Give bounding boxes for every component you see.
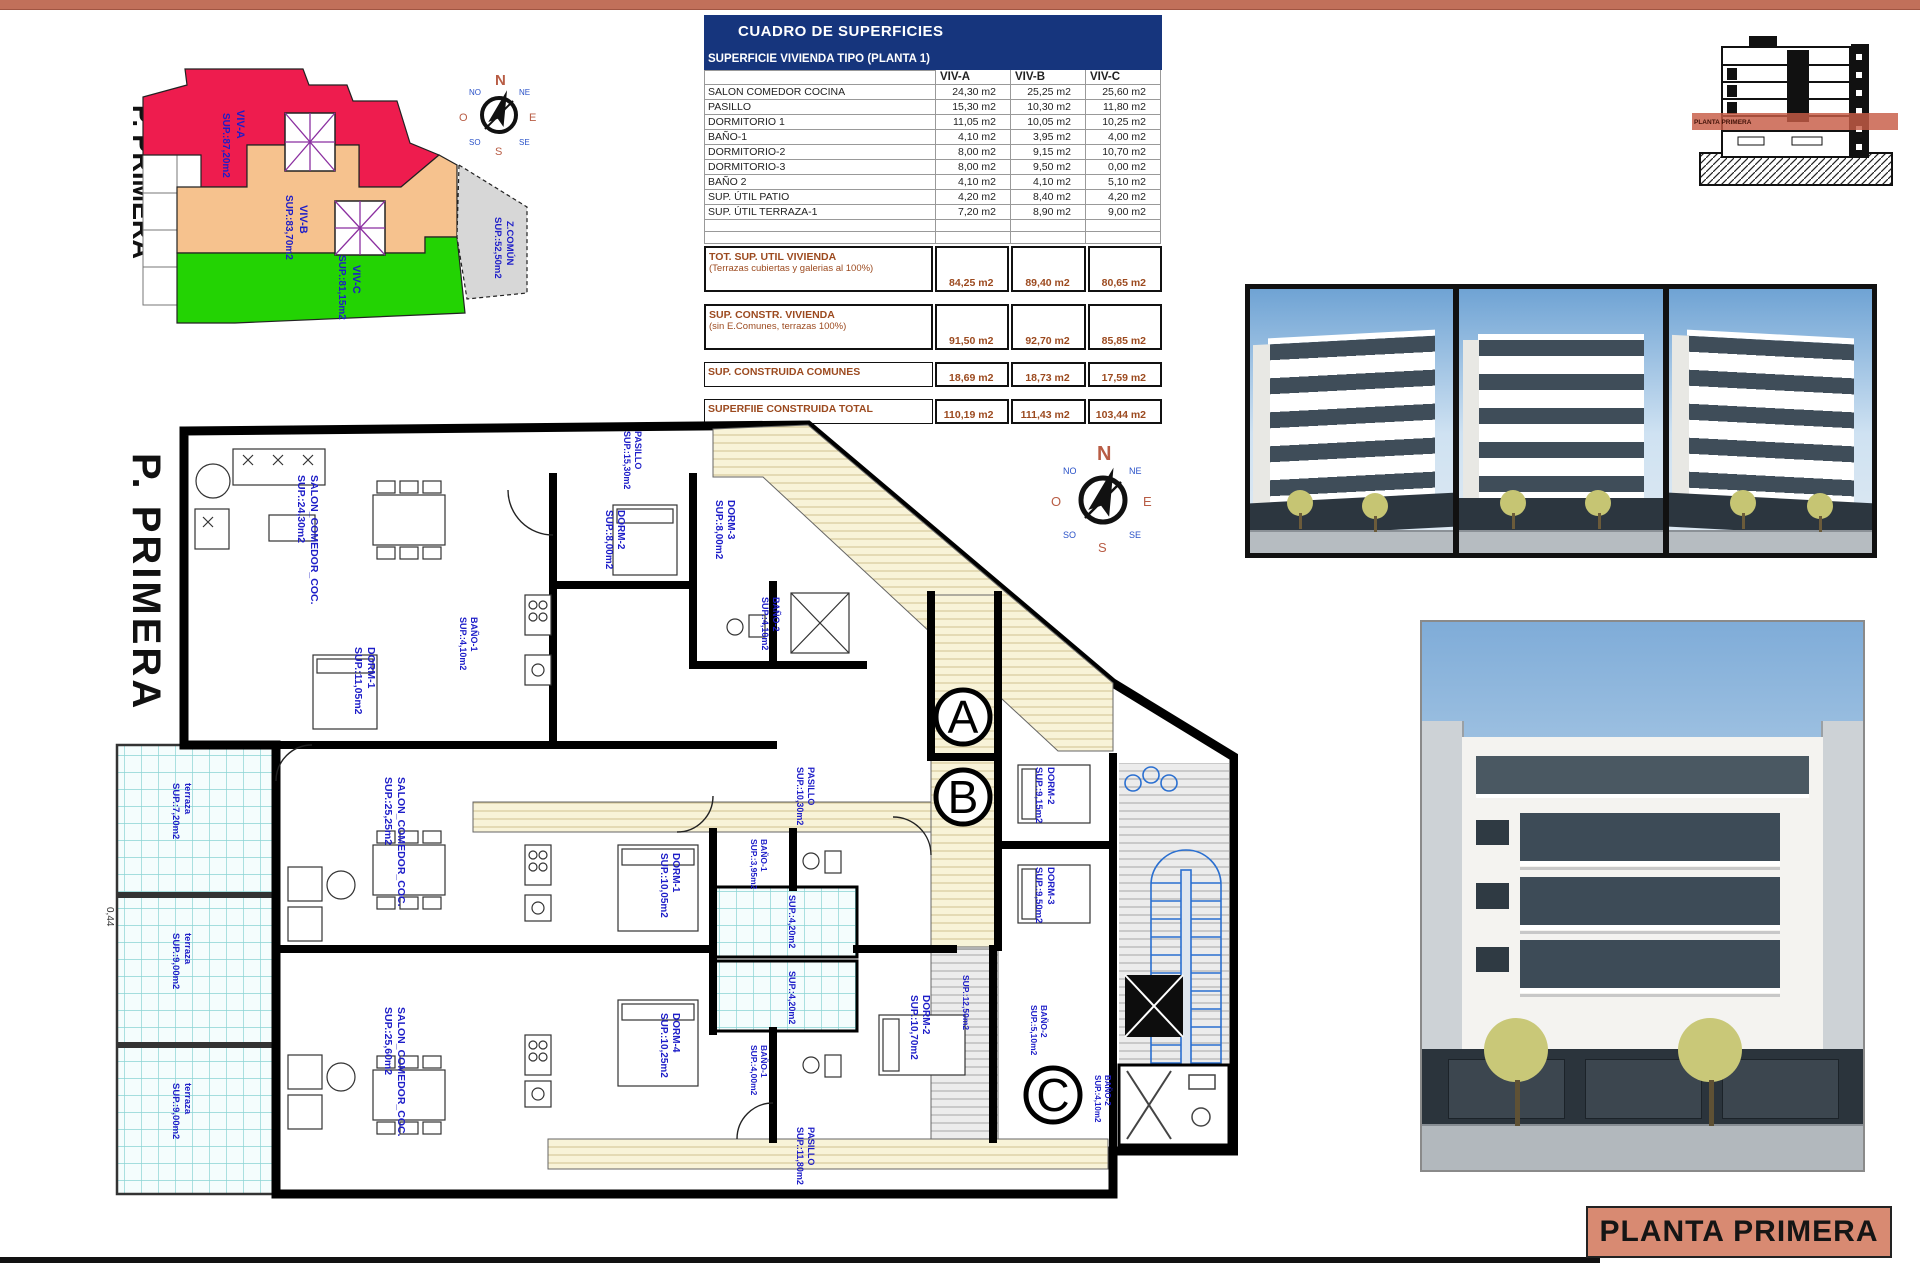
zone-a-name: VIV-A xyxy=(234,110,246,139)
tree xyxy=(1500,490,1526,516)
room-label: DORM-4 xyxy=(670,1013,681,1053)
balcony-band xyxy=(1520,877,1780,930)
room-label: BAÑO-2 xyxy=(1039,1005,1049,1038)
svg-text:SUP.:25,60m2: SUP.:25,60m2 xyxy=(382,1007,394,1075)
table-row: SALON COMEDOR COCINA24,30 m225,25 m225,6… xyxy=(704,85,1162,100)
col-viv-a: VIV-A xyxy=(936,70,1011,85)
street xyxy=(1422,1124,1863,1170)
room-label: DORM-2 xyxy=(920,995,931,1035)
elevator xyxy=(1125,975,1183,1037)
table-row: DORMITORIO-38,00 m29,50 m20,00 m2 xyxy=(704,160,1162,175)
plan-side-label: P. PRIMERA xyxy=(124,453,168,711)
room-label: terraza xyxy=(182,1083,193,1115)
total-comunes-row: SUP. CONSTRUIDA COMUNES 18,69 m2 18,73 m… xyxy=(704,362,1162,387)
svg-text:E: E xyxy=(1143,494,1152,509)
facade-render-1 xyxy=(1250,289,1453,553)
svg-text:O: O xyxy=(1051,494,1061,509)
roof-terrace xyxy=(1476,756,1809,798)
svg-text:S: S xyxy=(495,146,502,158)
main-building-render xyxy=(1420,620,1865,1172)
room-label: DORM-3 xyxy=(1045,867,1056,904)
table-row: BAÑO 24,10 m24,10 m25,10 m2 xyxy=(704,175,1162,190)
svg-text:SUP.:4,10m2: SUP.:4,10m2 xyxy=(1093,1075,1102,1123)
svg-text:NO: NO xyxy=(469,88,481,97)
room-label: DORM-2 xyxy=(1045,767,1056,804)
room-label: terraza xyxy=(182,783,193,815)
marker-a: A xyxy=(948,691,979,743)
room-label: BAÑO-2 xyxy=(771,597,781,632)
marker-c: C xyxy=(1036,1069,1069,1121)
room-label: BAÑO-2 xyxy=(1103,1075,1112,1106)
svg-text:E: E xyxy=(529,112,536,124)
table-subtitle: SUPERFICIE VIVIENDA TIPO (PLANTA 1) xyxy=(704,48,1162,70)
room-label: BAÑO-1 xyxy=(759,1045,769,1078)
svg-text:NE: NE xyxy=(1129,466,1142,476)
sheet-title: PLANTA PRIMERA xyxy=(1600,1215,1879,1249)
svg-text:SUP.:10,70m2: SUP.:10,70m2 xyxy=(908,995,919,1060)
room-label: terraza xyxy=(182,933,193,965)
building-facade xyxy=(1687,330,1854,508)
svg-text:S: S xyxy=(1098,540,1107,555)
zone-comun-sup: SUP.:52,50m2 xyxy=(492,217,503,279)
svg-text:SUP.:5,10m2: SUP.:5,10m2 xyxy=(1029,1005,1039,1056)
window xyxy=(1476,883,1509,908)
room-label: PASILLO xyxy=(806,1127,816,1165)
zone-c-sup: SUP.:81,15m2 xyxy=(336,255,347,320)
room-label: BAÑO-1 xyxy=(759,839,769,872)
section-band-label: PLANTA PRIMERA xyxy=(1694,119,1752,126)
neighbor-building xyxy=(1821,721,1863,1105)
building-facade xyxy=(1268,330,1435,508)
table-title: CUADRO DE SUPERFICIES xyxy=(704,15,1162,48)
zone-b-sup: SUP.:83,70m2 xyxy=(283,195,294,260)
floor-plan: P. PRIMERA 0,44 xyxy=(73,415,1238,1205)
corridor-label: SUP.:12,50m2 xyxy=(961,975,971,1030)
svg-text:SUP.:8,00m2: SUP.:8,00m2 xyxy=(713,500,724,560)
svg-text:SUP.:10,25m2: SUP.:10,25m2 xyxy=(658,1013,669,1078)
svg-text:SE: SE xyxy=(519,138,530,147)
section-basement xyxy=(1722,131,1850,157)
svg-text:SUP.:10,30m2: SUP.:10,30m2 xyxy=(795,767,805,825)
marker-b: B xyxy=(948,771,979,823)
svg-text:SUP.:11,80m2: SUP.:11,80m2 xyxy=(795,1127,805,1185)
total-constr-row: SUP. CONSTR. VIVIENDA(sin E.Comunes, ter… xyxy=(704,304,1162,350)
neighbor-building xyxy=(1422,721,1464,1105)
facade-render-2 xyxy=(1459,289,1662,553)
svg-text:SUP.:9,00m2: SUP.:9,00m2 xyxy=(170,933,181,989)
section-drawing: PLANTA PRIMERA xyxy=(1692,25,1904,193)
col-viv-b: VIV-B xyxy=(1011,70,1086,85)
balcony-band xyxy=(1520,940,1780,993)
tree xyxy=(1730,490,1756,516)
room-label: DORM-1 xyxy=(670,853,681,893)
room-label: PASILLO xyxy=(633,431,643,469)
tree xyxy=(1484,1018,1548,1082)
zone-c-name: VIV-C xyxy=(350,265,362,294)
svg-text:SUP.:15,30m2: SUP.:15,30m2 xyxy=(622,431,632,489)
svg-text:SUP.:10,05m2: SUP.:10,05m2 xyxy=(658,853,669,918)
room-label: BAÑO-1 xyxy=(469,617,479,652)
surface-table: CUADRO DE SUPERFICIES SUPERFICIE VIVIEND… xyxy=(704,15,1162,424)
svg-text:NE: NE xyxy=(519,88,530,97)
svg-text:SUP.:9,00m2: SUP.:9,00m2 xyxy=(170,1083,181,1139)
room-label: SALON_COMEDOR_COC. xyxy=(308,475,320,605)
plan-dimension: 0,44 xyxy=(104,907,115,927)
svg-text:SUP.:9,50m2: SUP.:9,50m2 xyxy=(1033,867,1044,923)
tree xyxy=(1287,490,1313,516)
table-row: BAÑO-14,10 m23,95 m24,00 m2 xyxy=(704,130,1162,145)
stair-block xyxy=(1119,763,1229,1145)
svg-text:SUP.:7,20m2: SUP.:7,20m2 xyxy=(170,783,181,839)
room-label: DORM-2 xyxy=(615,510,626,550)
balcony-band xyxy=(1520,813,1780,866)
key-plan-terrace-cells xyxy=(143,155,177,305)
compass-icon: N S E O NE NO SE SO xyxy=(459,72,536,158)
col-viv-c: VIV-C xyxy=(1086,70,1161,85)
facade-render-3 xyxy=(1669,289,1872,553)
building-facade xyxy=(1478,334,1645,504)
svg-text:SUP.:4,00m2: SUP.:4,00m2 xyxy=(749,1045,759,1096)
window xyxy=(1476,947,1509,972)
table-row: SUP. ÚTIL PATIO4,20 m28,40 m24,20 m2 xyxy=(704,190,1162,205)
table-empty-row xyxy=(704,232,1162,244)
zone-a-sup: SUP.:87,20m2 xyxy=(220,113,231,178)
table-empty-row xyxy=(704,220,1162,232)
table-row: SUP. ÚTIL TERRAZA-17,20 m28,90 m29,00 m2 xyxy=(704,205,1162,220)
room-label: SALON_COMEDOR_COC. xyxy=(395,777,407,907)
svg-text:SUP.:4,10m2: SUP.:4,10m2 xyxy=(458,617,468,670)
svg-text:NO: NO xyxy=(1063,466,1077,476)
top-accent-bar xyxy=(0,0,1920,10)
compass-icon: N S E O NE NO SE SO xyxy=(1051,443,1152,555)
zone-comun xyxy=(457,165,527,299)
tree xyxy=(1678,1018,1742,1082)
sheet-title-block: PLANTA PRIMERA xyxy=(1586,1206,1892,1258)
zone-b-name: VIV-B xyxy=(297,205,309,234)
building-facade xyxy=(1462,737,1824,1055)
patio-label: SUP.:4,20m2 xyxy=(787,971,797,1024)
svg-text:SUP.:3,95m2: SUP.:3,95m2 xyxy=(749,839,759,890)
table-row: DORMITORIO 111,05 m210,05 m210,25 m2 xyxy=(704,115,1162,130)
facade-render-strip xyxy=(1245,284,1877,558)
patio-label: SUP.:4,20m2 xyxy=(787,895,797,948)
tree xyxy=(1807,493,1833,519)
zone-comun-name: Z.COMÚN xyxy=(504,221,516,265)
svg-text:SUP.:24,30m2: SUP.:24,30m2 xyxy=(295,475,307,543)
total-util-row: TOT. SUP. UTIL VIVIENDA(Terrazas cubiert… xyxy=(704,246,1162,292)
sheet-frame-line xyxy=(0,1257,1600,1263)
table-header-row: VIV-A VIV-B VIV-C xyxy=(704,70,1162,85)
svg-text:SUP.:9,15m2: SUP.:9,15m2 xyxy=(1033,767,1044,823)
room-label: PASILLO xyxy=(806,767,816,805)
svg-text:N: N xyxy=(1097,443,1111,465)
terraces xyxy=(117,745,276,1194)
room-label: SALON_COMEDOR_COC. xyxy=(395,1007,407,1137)
svg-text:SUP.:11,05m2: SUP.:11,05m2 xyxy=(352,647,364,715)
room-label: DORM-3 xyxy=(725,500,736,540)
tree xyxy=(1362,493,1388,519)
svg-text:SUP.:25,25m2: SUP.:25,25m2 xyxy=(382,777,394,845)
svg-text:SUP.:4,10m2: SUP.:4,10m2 xyxy=(760,597,770,650)
svg-text:O: O xyxy=(459,112,468,124)
window xyxy=(1476,820,1509,845)
svg-text:SE: SE xyxy=(1129,530,1141,540)
key-plan: P. PRIMERA VIV-A SUP.:87,20m2 VIV-B SUP.… xyxy=(95,55,545,350)
svg-text:SUP.:8,00m2: SUP.:8,00m2 xyxy=(603,510,614,570)
svg-text:N: N xyxy=(495,72,506,89)
table-row: DORMITORIO-28,00 m29,15 m210,70 m2 xyxy=(704,145,1162,160)
key-plan-zones xyxy=(143,69,527,323)
svg-text:SO: SO xyxy=(469,138,481,147)
table-row: PASILLO15,30 m210,30 m211,80 m2 xyxy=(704,100,1162,115)
common-bath xyxy=(1119,1065,1229,1145)
svg-text:SO: SO xyxy=(1063,530,1076,540)
room-label: DORM-1 xyxy=(365,647,377,689)
